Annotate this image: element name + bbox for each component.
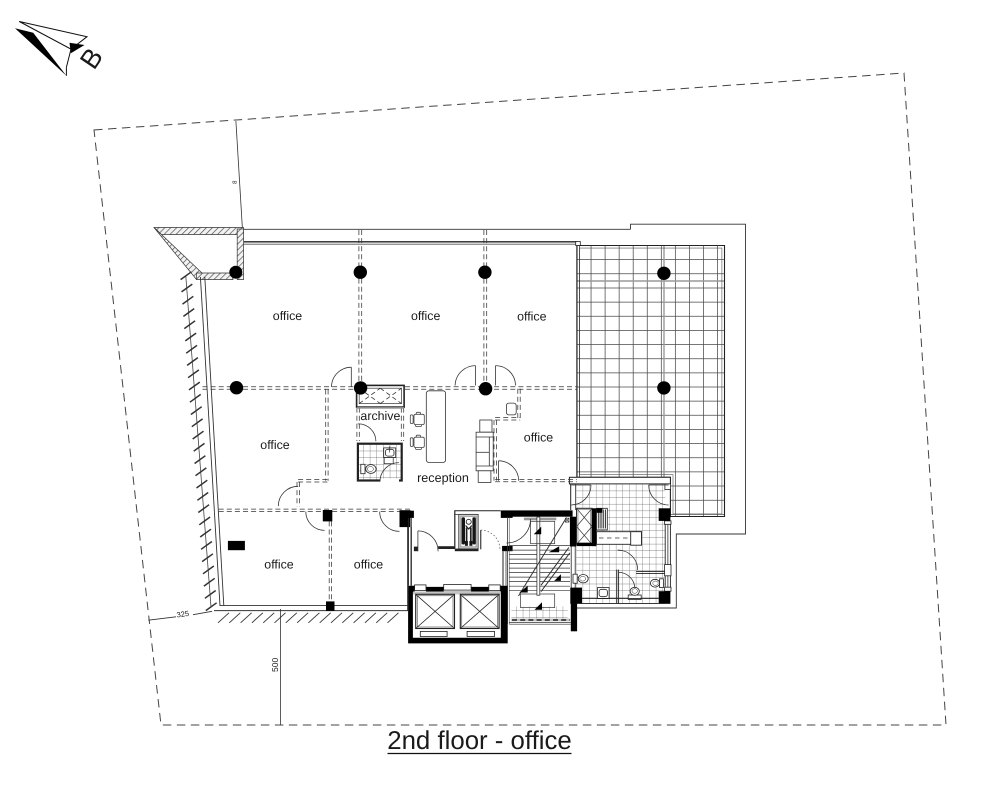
svg-text:office: office: [524, 430, 554, 444]
svg-text:reception: reception: [417, 471, 469, 485]
svg-text:office: office: [264, 558, 294, 572]
svg-text:office: office: [517, 309, 547, 323]
svg-text:2nd floor - office: 2nd floor - office: [387, 727, 572, 755]
svg-text:archive: archive: [360, 409, 400, 423]
svg-text:325: 325: [176, 609, 190, 620]
svg-text:office: office: [411, 309, 441, 323]
svg-text:500: 500: [270, 658, 280, 672]
svg-text:office: office: [354, 558, 384, 572]
svg-text:office: office: [273, 309, 303, 323]
svg-text:office: office: [260, 438, 290, 452]
